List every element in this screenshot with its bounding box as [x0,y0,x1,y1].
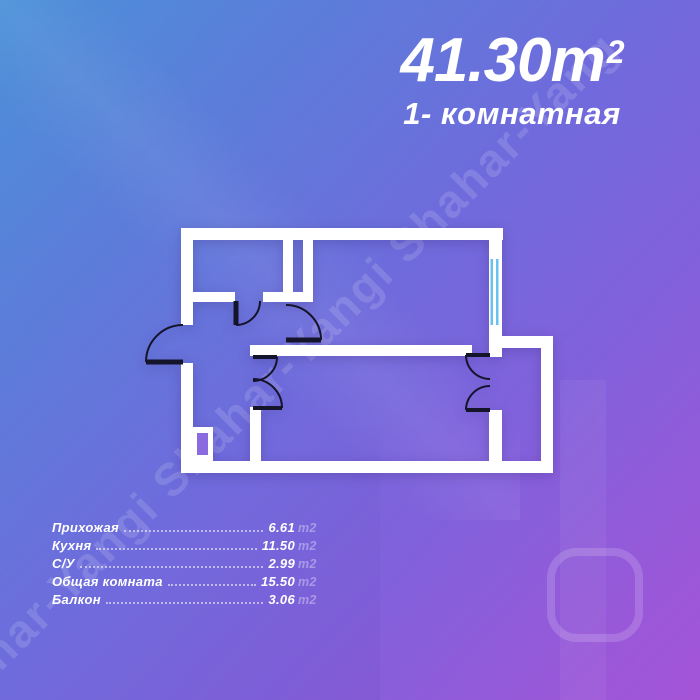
legend-row: Балкон 3.06 m2 [52,593,322,607]
room-area-value: 2.99 [268,557,295,570]
leader-line [124,530,264,532]
room-area-unit: m2 [298,576,322,589]
legend-row: С/У 2.99 m2 [52,557,322,571]
bathroom-door-arc [236,301,260,325]
duct-inner [197,433,208,455]
promo-card: { "title": { "area": "41.30", "unit": "m… [0,0,700,700]
legend-row: Кухня 11.50 m2 [52,539,322,553]
leader-line [80,566,264,568]
wall-shaft-right [303,240,313,293]
wall-living-balcony [489,410,502,461]
wall-balcony-right [541,336,553,473]
balcony-door-bottom-arc [466,386,490,410]
wall-left-upper [181,228,193,325]
room-label: Кухня [52,539,91,552]
kitchen-door-arc [286,305,321,340]
wall-hall-right [250,407,261,461]
legend-row: Общая комната 15.50 m2 [52,575,322,589]
room-legend: Прихожая 6.61 m2 Кухня 11.50 m2 С/У 2.99… [52,521,322,607]
window-glass-inner [496,259,499,325]
wall-top [181,228,503,240]
leader-line [106,602,264,604]
wall-bathroom-bottom-left [181,292,235,302]
wall-bathroom-bottom-right [263,292,313,302]
room-area-unit: m2 [298,594,322,607]
room-area-unit: m2 [298,540,322,553]
balcony-door-top-arc [466,355,490,379]
room-area-value: 15.50 [261,575,295,588]
wall-shaft-left [283,240,293,293]
room-area-unit: m2 [298,558,322,571]
legend-row: Прихожая 6.61 m2 [52,521,322,535]
room-label: С/У [52,557,75,570]
room-area-unit: m2 [298,522,322,535]
wall-bottom [181,461,553,473]
room-area-value: 6.61 [268,521,295,534]
room-label: Общая комната [52,575,163,588]
room-area-value: 3.06 [268,593,295,606]
wall-left-lower [181,363,193,473]
room-label: Прихожая [52,521,119,534]
hall-door-top-arc [253,357,277,381]
hall-door-bottom-arc [253,379,282,408]
room-label: Балкон [52,593,101,606]
window-glass-outer [491,259,494,325]
leader-line [168,584,256,586]
room-area-value: 11.50 [262,539,295,552]
wall-living-top [250,345,472,356]
entrance-door-arc [146,325,183,362]
brand-logo-outline [547,548,643,642]
leader-line [96,548,256,550]
